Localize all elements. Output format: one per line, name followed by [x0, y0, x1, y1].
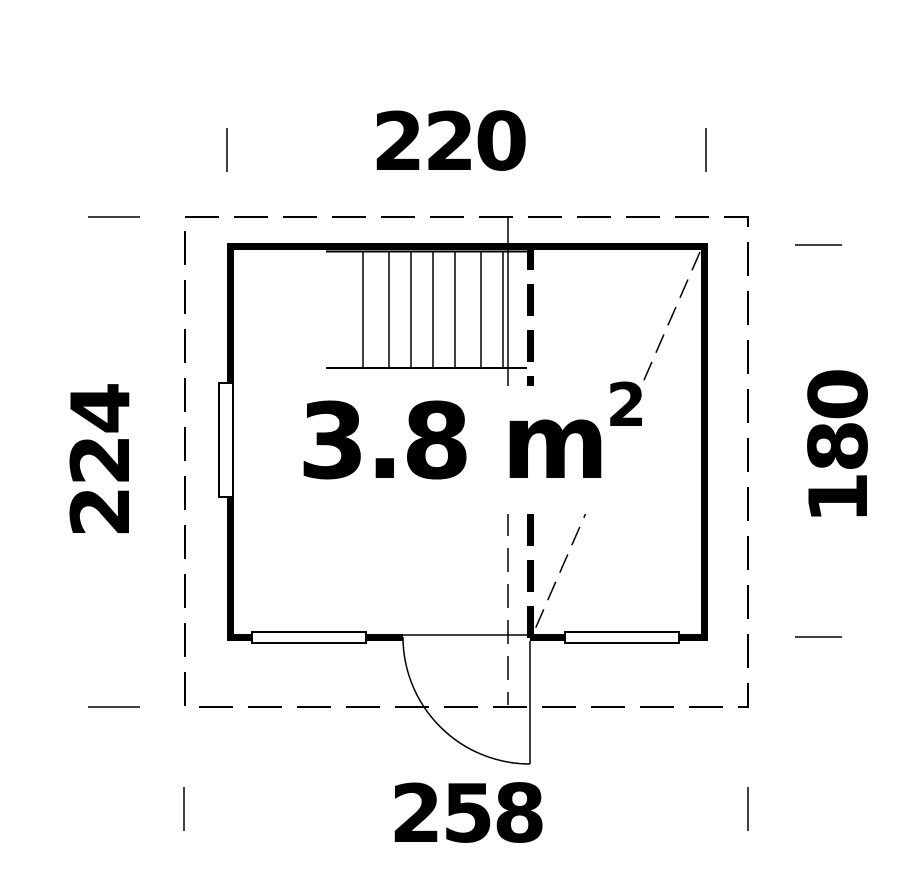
wall-bottom-seg2: [366, 634, 403, 641]
room-area-superscript: 2: [606, 371, 648, 441]
room-area-label: 3.8 m2: [289, 386, 656, 514]
wall-top: [227, 243, 708, 250]
dimension-height-right: 180: [800, 371, 880, 526]
window-bottom-right: [565, 632, 679, 643]
floor-plan-canvas: 220 258 224 180 3.8 m2: [0, 0, 900, 893]
door: [403, 637, 530, 764]
staircase: [326, 252, 527, 369]
door-swing-arc: [403, 637, 530, 764]
stair-treads: [363, 253, 503, 368]
wall-bottom-seg3: [530, 634, 566, 641]
wall-bottom-seg1: [227, 634, 253, 641]
room-area-value: 3.8 m: [297, 381, 606, 503]
wall-bottom-seg4: [679, 634, 708, 641]
wall-right: [701, 243, 708, 641]
wall-left-upper: [227, 243, 234, 383]
dimension-width-top: 220: [371, 103, 526, 183]
window-bottom-left: [252, 632, 366, 643]
dimension-width-bottom: 258: [389, 775, 544, 855]
wall-left-lower: [227, 497, 234, 640]
dimension-height-left: 224: [62, 385, 142, 540]
window-left-wall: [219, 383, 233, 497]
